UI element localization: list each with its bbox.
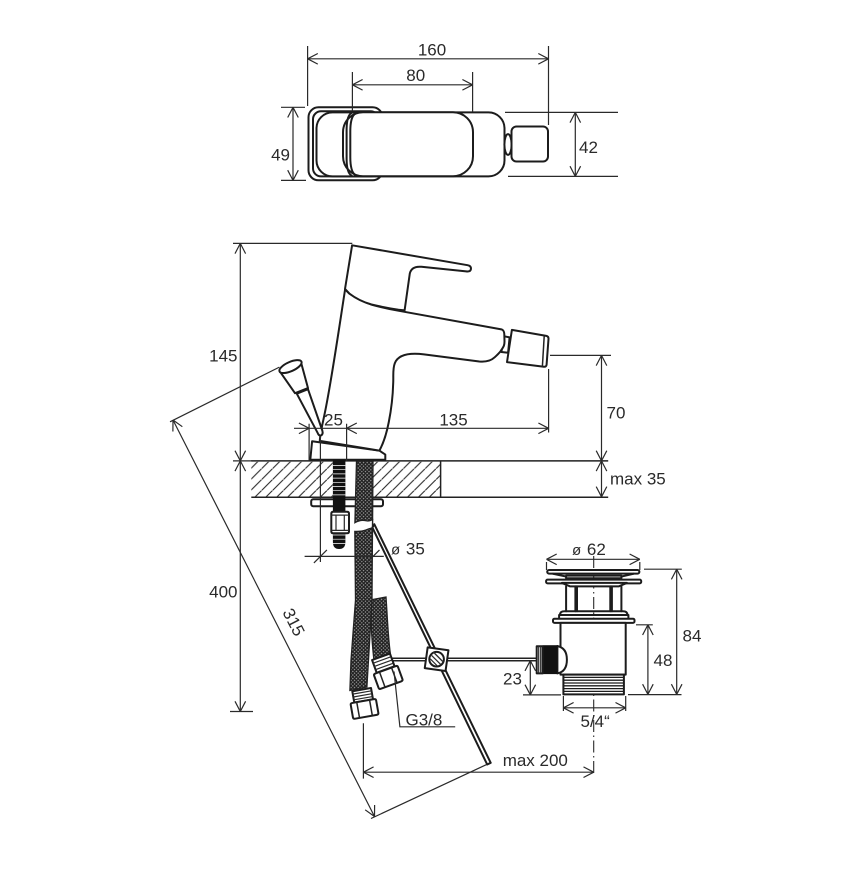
svg-text:84: 84 bbox=[683, 627, 702, 646]
svg-text:49: 49 bbox=[271, 145, 290, 164]
svg-text:145: 145 bbox=[209, 347, 237, 366]
svg-text:G3/8: G3/8 bbox=[406, 711, 443, 730]
svg-text:max 200: max 200 bbox=[503, 751, 568, 770]
svg-text:max 35: max 35 bbox=[610, 470, 666, 489]
svg-text:ø 62: ø 62 bbox=[572, 540, 606, 559]
svg-text:23: 23 bbox=[503, 670, 522, 689]
svg-text:135: 135 bbox=[439, 411, 467, 430]
svg-text:160: 160 bbox=[418, 40, 446, 59]
svg-text:42: 42 bbox=[579, 138, 598, 157]
svg-text:48: 48 bbox=[654, 651, 673, 670]
svg-text:70: 70 bbox=[607, 404, 626, 423]
svg-text:ø 35: ø 35 bbox=[391, 540, 425, 559]
svg-text:5/4“: 5/4“ bbox=[581, 712, 611, 731]
svg-text:25: 25 bbox=[324, 411, 343, 430]
svg-text:400: 400 bbox=[209, 583, 237, 602]
svg-text:80: 80 bbox=[406, 66, 425, 85]
